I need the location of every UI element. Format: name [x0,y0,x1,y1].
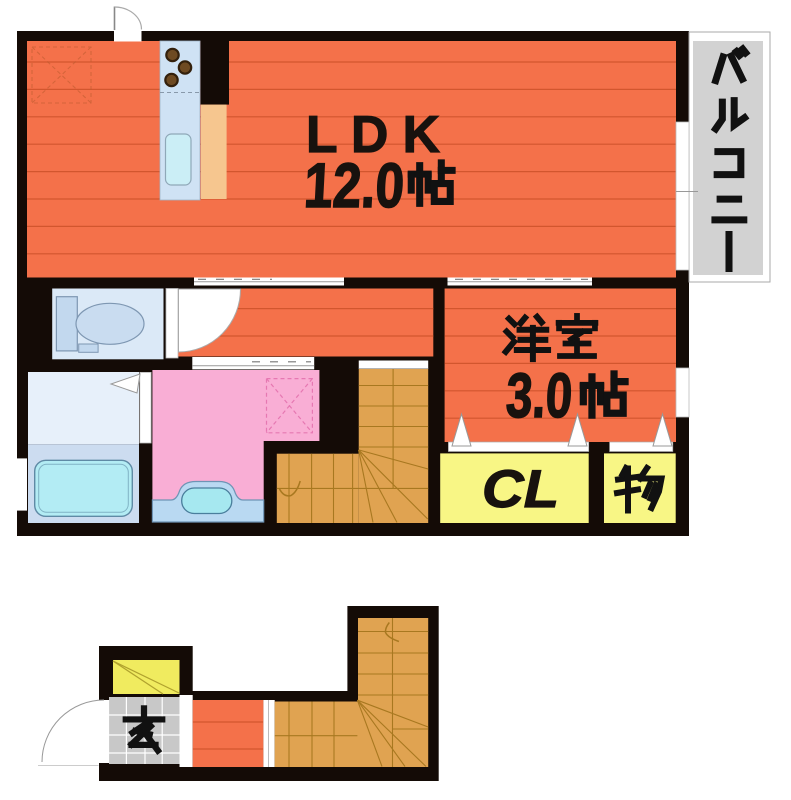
svg-text:12.0: 12.0 [302,151,406,221]
svg-text:CL: CL [482,460,559,519]
svg-text:3.0: 3.0 [504,361,574,431]
